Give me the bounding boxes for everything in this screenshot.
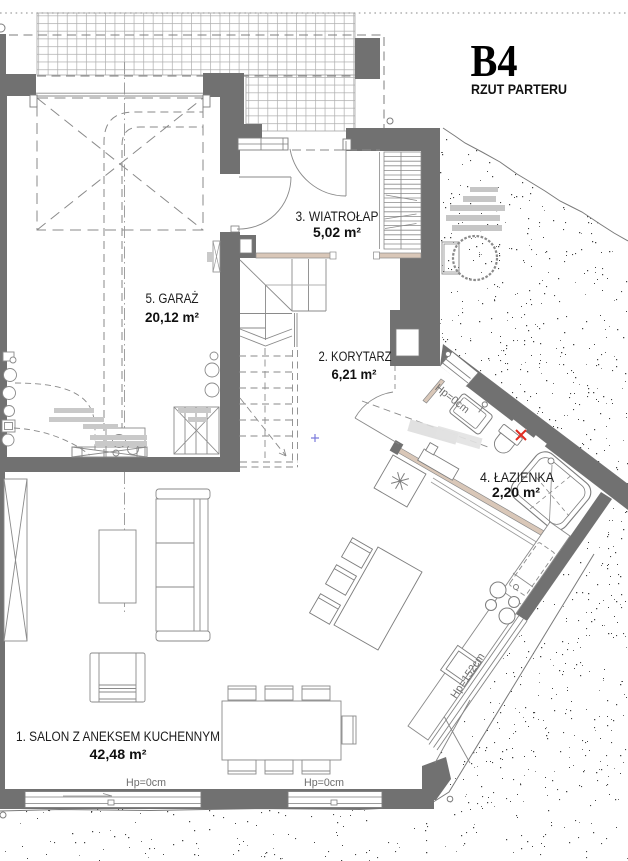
svg-text:2. KORYTARZ: 2. KORYTARZ	[319, 349, 392, 364]
svg-text:B4: B4	[471, 35, 518, 86]
svg-text:Hp=0cm: Hp=0cm	[304, 777, 344, 789]
svg-text:42,48 m²: 42,48 m²	[90, 747, 148, 762]
svg-text:Hp=0cm: Hp=0cm	[126, 777, 166, 789]
svg-text:6,21 m²: 6,21 m²	[332, 367, 377, 382]
svg-text:5,02 m²: 5,02 m²	[313, 225, 362, 240]
svg-text:RZUT PARTERU: RZUT PARTERU	[471, 81, 567, 97]
svg-text:2,20 m²: 2,20 m²	[492, 485, 541, 500]
svg-text:1. SALON Z ANEKSEM KUCHENNYM: 1. SALON Z ANEKSEM KUCHENNYM	[16, 729, 220, 744]
svg-text:20,12 m²: 20,12 m²	[145, 310, 199, 325]
svg-text:4. ŁAZIENKA: 4. ŁAZIENKA	[480, 470, 554, 485]
svg-text:5. GARAŻ: 5. GARAŻ	[146, 291, 199, 306]
svg-text:3. WIATROŁAP: 3. WIATROŁAP	[296, 209, 379, 224]
